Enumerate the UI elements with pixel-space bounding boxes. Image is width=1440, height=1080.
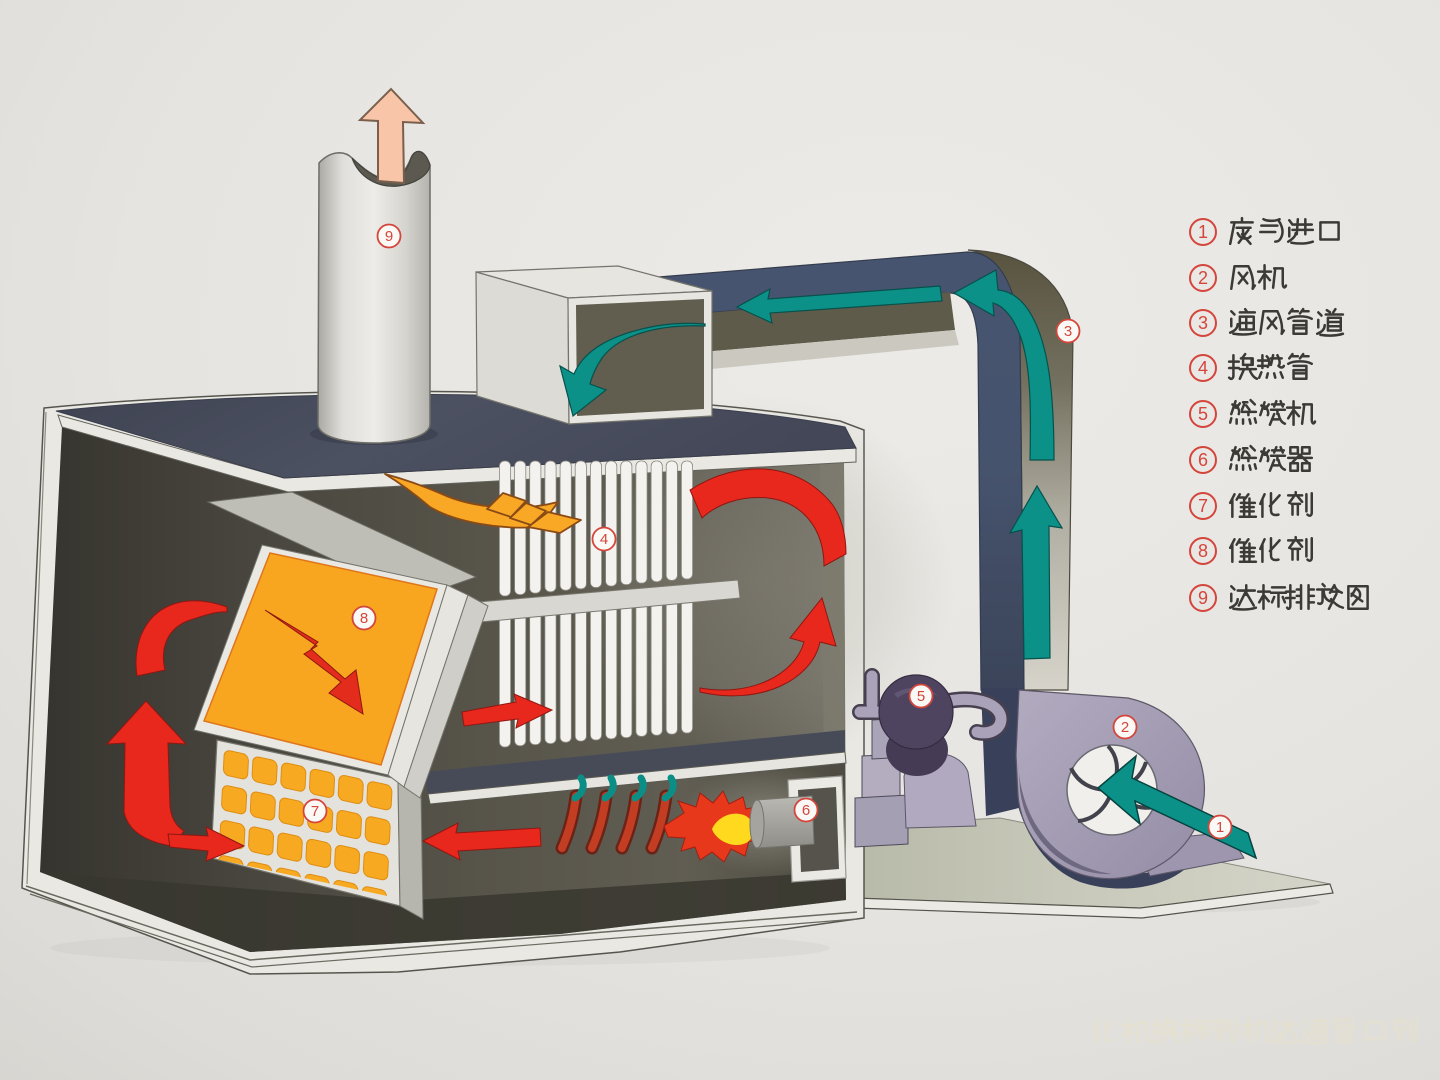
svg-text:3: 3 <box>1064 323 1072 340</box>
svg-text:9: 9 <box>385 228 393 245</box>
svg-text:7: 7 <box>311 803 319 820</box>
svg-text:7: 7 <box>1198 496 1208 516</box>
svg-text:5: 5 <box>917 688 925 705</box>
svg-text:1: 1 <box>1216 819 1224 836</box>
svg-text:9: 9 <box>1198 588 1208 608</box>
svg-text:2: 2 <box>1121 719 1129 736</box>
svg-text:8: 8 <box>1198 541 1208 561</box>
svg-text:3: 3 <box>1198 313 1208 333</box>
svg-text:4: 4 <box>1198 358 1208 378</box>
svg-text:4: 4 <box>600 531 608 548</box>
svg-text:1: 1 <box>1198 222 1208 242</box>
svg-text:2: 2 <box>1198 268 1208 288</box>
svg-text:6: 6 <box>1198 450 1208 470</box>
svg-text:8: 8 <box>360 610 368 627</box>
svg-text:6: 6 <box>802 802 810 819</box>
svg-text:5: 5 <box>1198 404 1208 424</box>
